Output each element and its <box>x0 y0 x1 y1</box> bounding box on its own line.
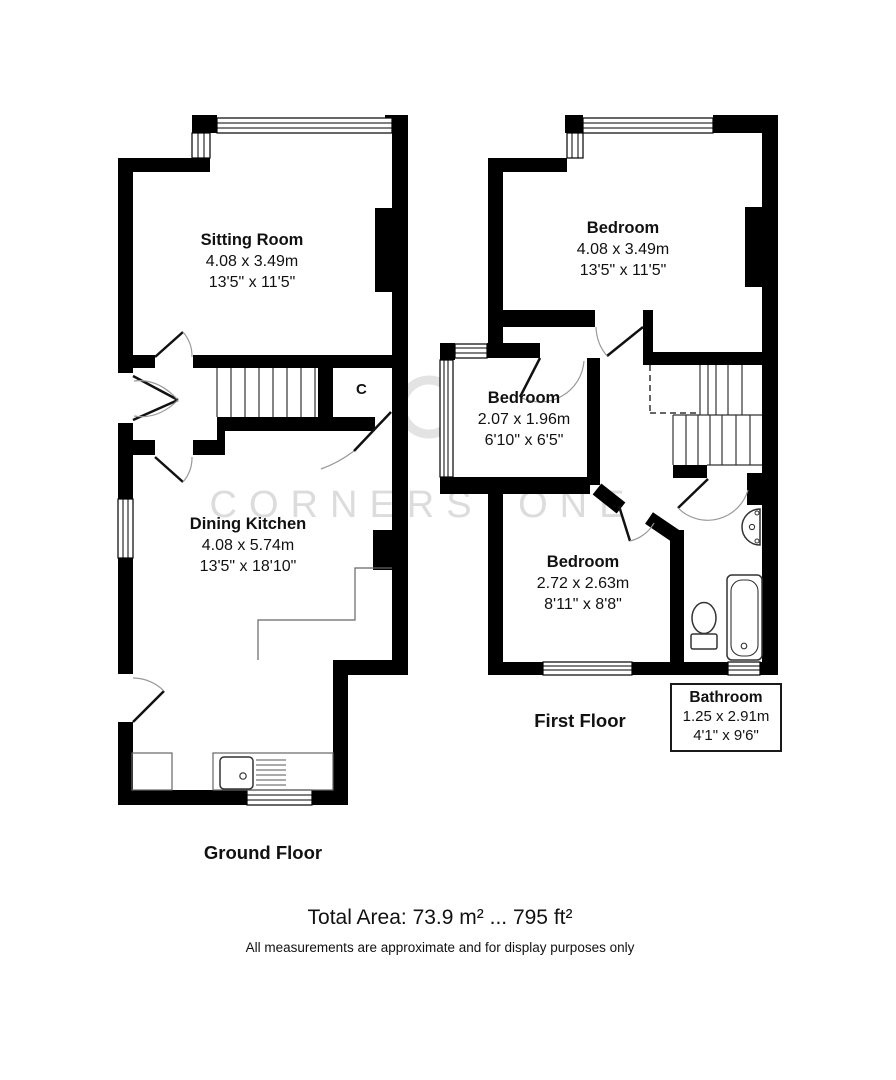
first-floor-label: First Floor <box>534 710 625 732</box>
room-dim-imperial: 8'11" x 8'8" <box>537 594 630 615</box>
cupboard-label: C <box>356 381 367 398</box>
room-dim-imperial: 13'5" x 18'10" <box>190 556 306 577</box>
room-label-dining-kitchen: Dining Kitchen 4.08 x 5.74m 13'5" x 18'1… <box>190 514 306 577</box>
room-dim-imperial: 6'10" x 6'5" <box>478 430 571 451</box>
bathroom-info-box: Bathroom 1.25 x 2.91m 4'1" x 9'6" <box>670 683 782 752</box>
room-dim-imperial: 13'5" x 11'5" <box>201 272 304 293</box>
room-name: Sitting Room <box>201 230 304 251</box>
room-dim-metric: 1.25 x 2.91m <box>672 707 780 726</box>
room-dim-imperial: 13'5" x 11'5" <box>577 260 670 281</box>
room-name: Dining Kitchen <box>190 514 306 535</box>
ground-floor-label: Ground Floor <box>204 842 322 864</box>
room-dim-metric: 4.08 x 3.49m <box>201 251 304 272</box>
room-label-sitting-room: Sitting Room 4.08 x 3.49m 13'5" x 11'5" <box>201 230 304 293</box>
room-dim-metric: 4.08 x 5.74m <box>190 535 306 556</box>
room-dim-imperial: 4'1" x 9'6" <box>672 726 780 745</box>
room-name: Bedroom <box>577 218 670 239</box>
room-label-bedroom-2: Bedroom 2.07 x 1.96m 6'10" x 6'5" <box>478 388 571 451</box>
room-dim-metric: 4.08 x 3.49m <box>577 239 670 260</box>
room-name: Bedroom <box>537 552 630 573</box>
disclaimer-text: All measurements are approximate and for… <box>246 940 635 955</box>
floorplan-page: CORNERSTONE <box>0 0 896 1080</box>
room-dim-metric: 2.07 x 1.96m <box>478 409 571 430</box>
room-dim-metric: 2.72 x 2.63m <box>537 573 630 594</box>
labels-layer: Sitting Room 4.08 x 3.49m 13'5" x 11'5" … <box>0 0 896 1080</box>
room-label-bedroom-1: Bedroom 4.08 x 3.49m 13'5" x 11'5" <box>577 218 670 281</box>
room-label-bedroom-3: Bedroom 2.72 x 2.63m 8'11" x 8'8" <box>537 552 630 615</box>
room-name: Bedroom <box>478 388 571 409</box>
room-name: Bathroom <box>672 688 780 707</box>
total-area-text: Total Area: 73.9 m² ... 795 ft² <box>308 906 573 930</box>
